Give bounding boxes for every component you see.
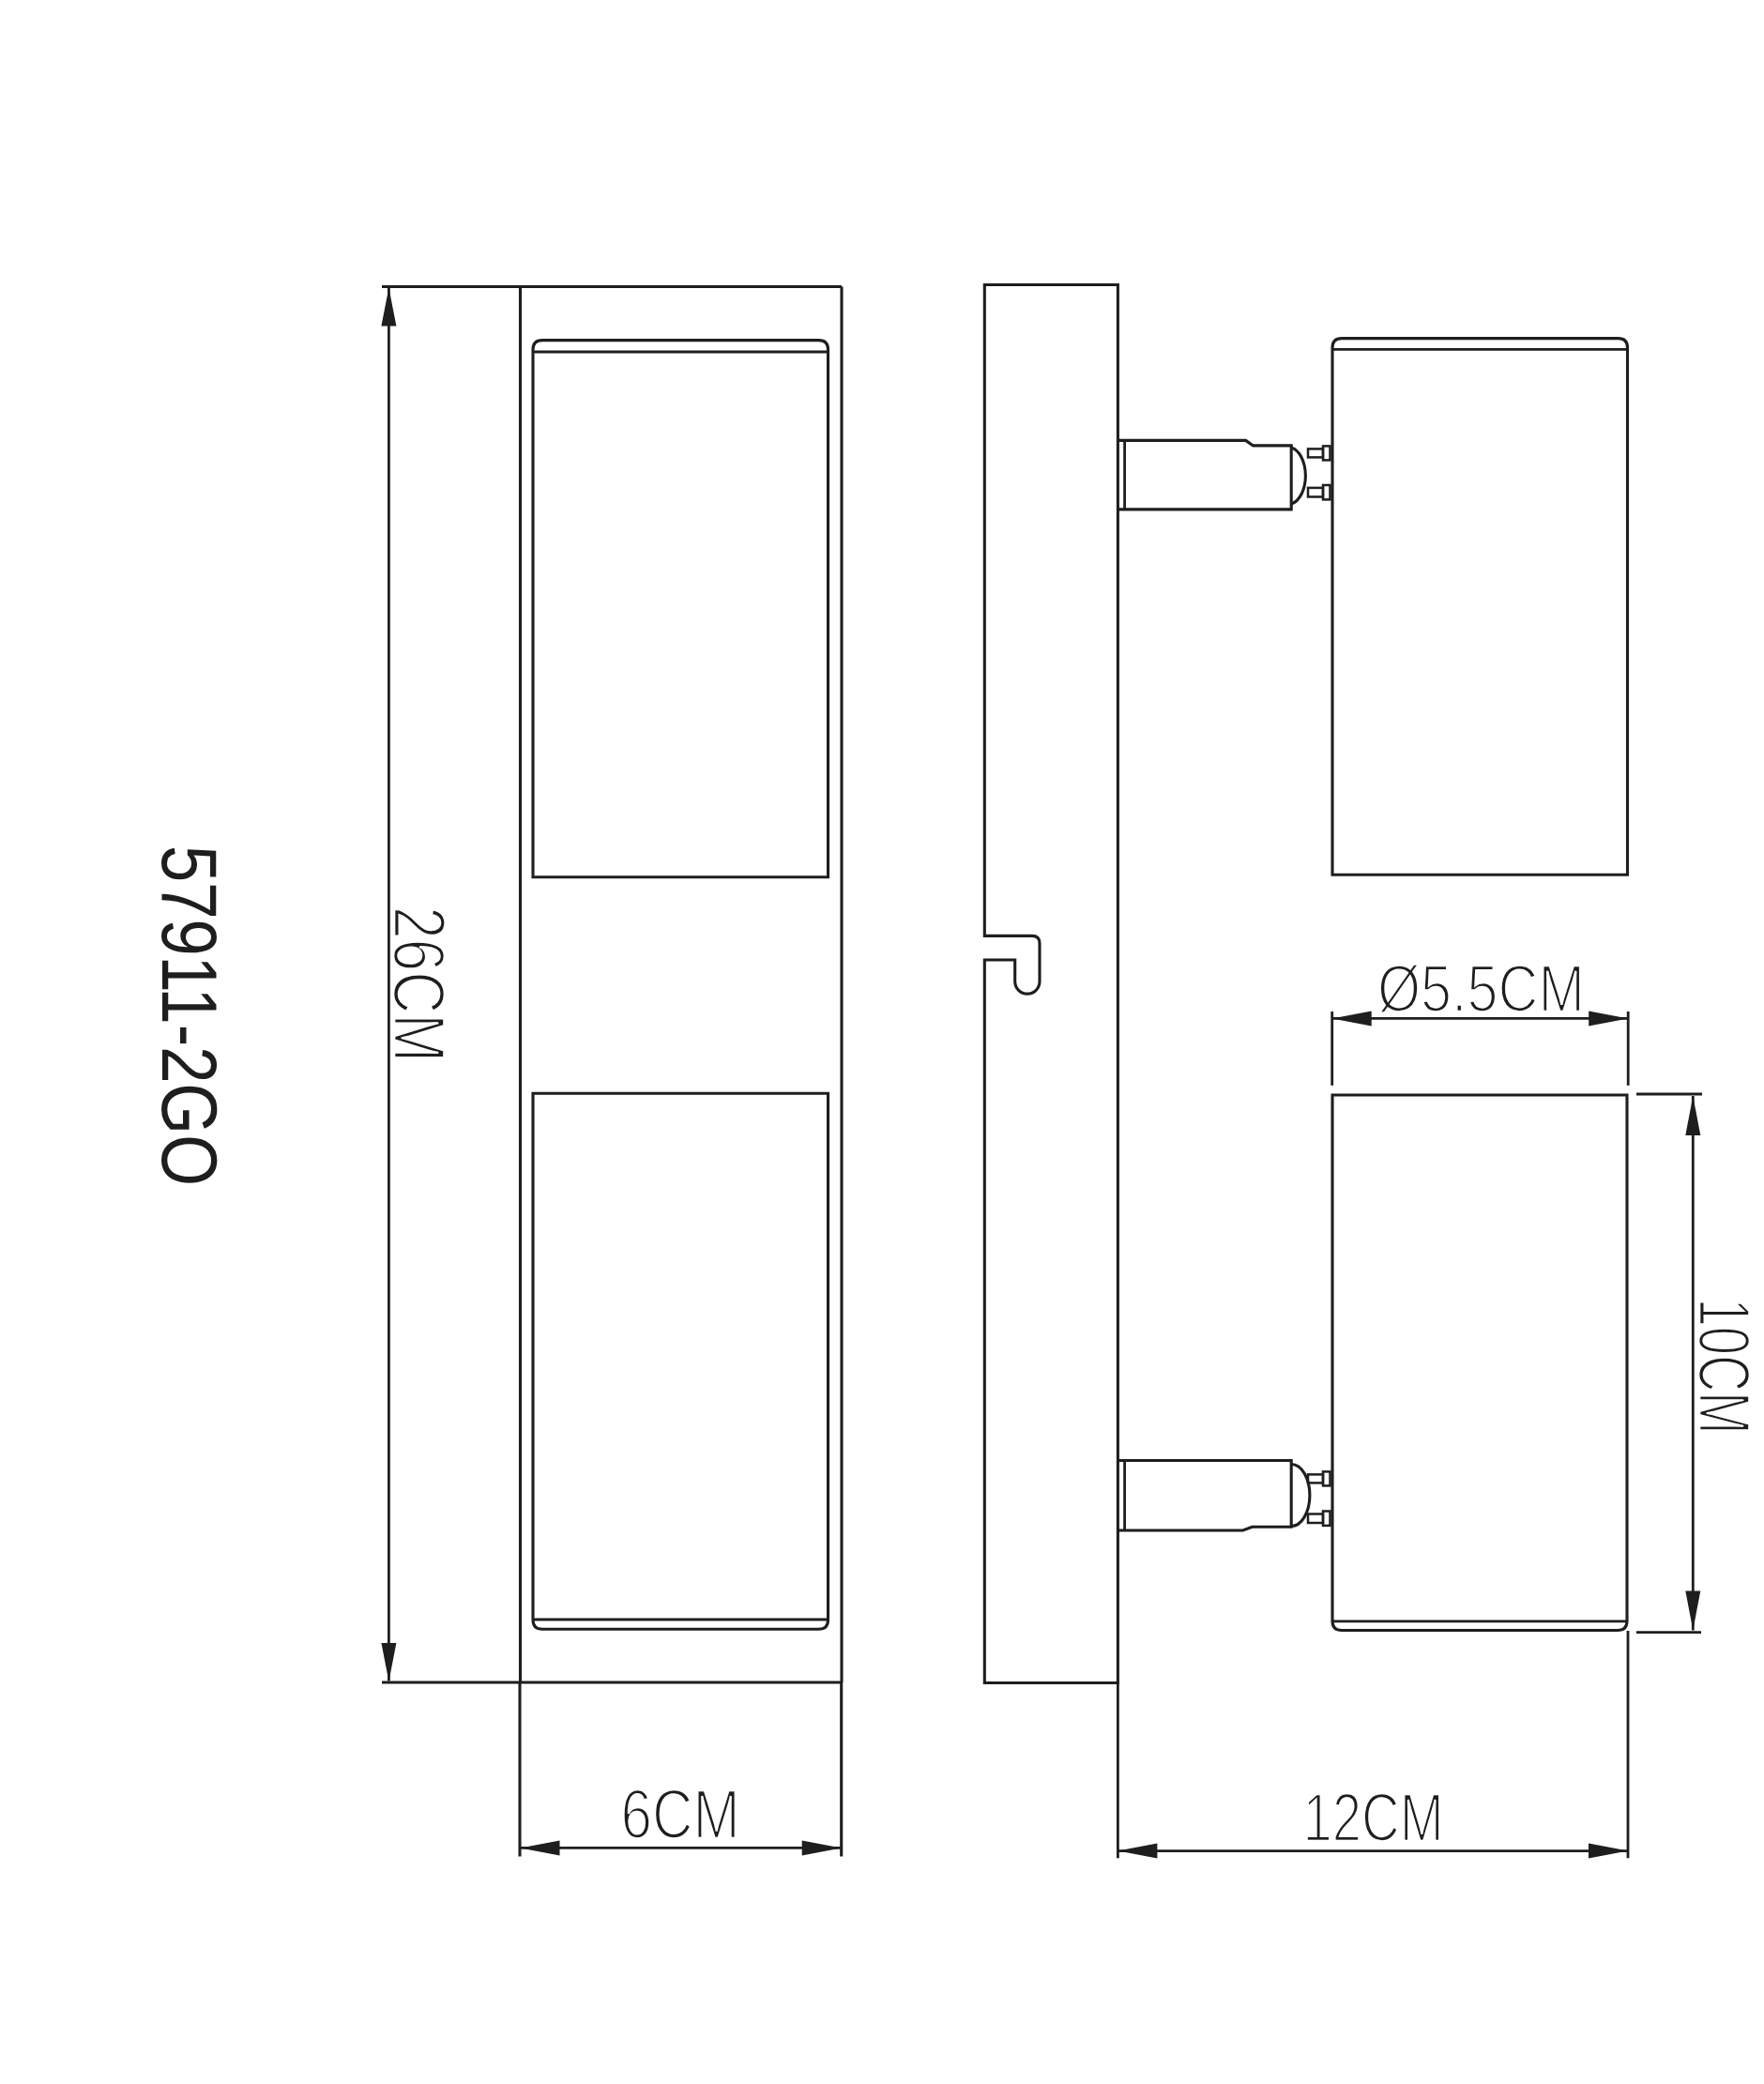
svg-text:12CM: 12CM [1303, 1780, 1444, 1855]
svg-text:26CM: 26CM [378, 906, 461, 1062]
svg-text:6CM: 6CM [621, 1775, 740, 1853]
svg-text:57911-2GO: 57911-2GO [145, 845, 233, 1186]
svg-text:Ø5.5CM: Ø5.5CM [1377, 952, 1585, 1026]
svg-text:10CM: 10CM [1683, 1299, 1764, 1435]
